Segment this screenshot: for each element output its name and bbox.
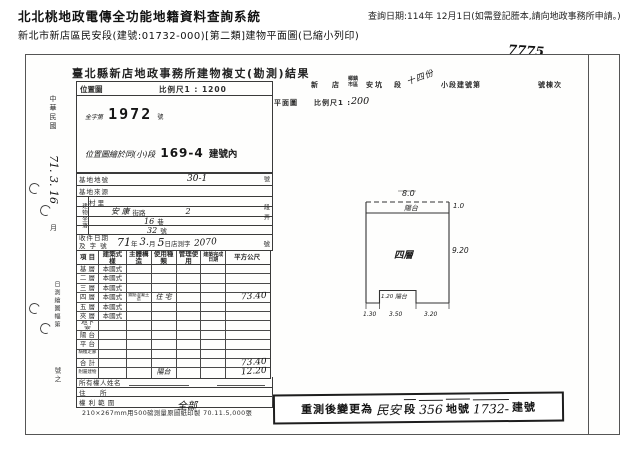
location-note: 位置圖繪於同(小)段 xyxy=(85,150,155,159)
intake-year: 71 xyxy=(117,236,131,249)
row-management xyxy=(177,265,202,273)
query-date: 查詢日期:114年 12月1日(如需登記謄本,請向地政事務所申請。) xyxy=(368,9,621,22)
era-label: 中華民國 xyxy=(48,95,58,131)
row-structure xyxy=(127,274,152,282)
blank-line xyxy=(129,385,189,386)
row-style: 本國式 xyxy=(99,265,127,273)
row-label: 平 台 xyxy=(77,340,99,348)
row-structure xyxy=(127,359,152,367)
row-area xyxy=(226,312,270,320)
row-management xyxy=(177,284,202,292)
row-use xyxy=(152,274,177,282)
stamp-prefix: 重測後變更為 xyxy=(301,400,373,417)
stamp-section-name: 民安 xyxy=(376,399,401,418)
row-area xyxy=(226,321,270,329)
intake-label: 收件日期 及 字 號 xyxy=(77,235,117,249)
header-area: 平方公尺 xyxy=(226,251,270,264)
floor-row-terrace: 平 台 xyxy=(77,340,270,349)
row-style xyxy=(99,350,127,358)
lot-number-row: 基地地號 30-1 號 xyxy=(77,173,272,186)
row-use xyxy=(152,265,177,273)
case-number-prefix: 全字第 xyxy=(85,114,103,121)
punch-mark xyxy=(38,321,52,335)
floor-row-basement: 地下室 xyxy=(77,321,270,330)
floor-area-table: 項 目 建築式樣 主體構造 使用種類 管理使用 建築完成日期 平方公尺 基 層本… xyxy=(76,250,271,379)
survey-sheet-suffix: 號之 xyxy=(52,367,62,384)
row-use xyxy=(152,303,177,311)
intake-day-label: 日店測字 xyxy=(165,238,191,248)
notch-label: 陽台 xyxy=(395,293,408,301)
row-label: 基 層 xyxy=(77,265,99,273)
handwritten-survey-date: 71. 3. 16 xyxy=(47,155,60,204)
location-map-box: 位置圖 比例尺1 : 1200 全字第 1972 號 位置圖繪於同(小)段 16… xyxy=(76,81,273,174)
row-style xyxy=(99,359,127,367)
subsection-label: 小段建號第 xyxy=(441,80,481,90)
header-management: 管理使用 xyxy=(177,251,202,264)
location-note-number: 169-4 xyxy=(160,146,203,160)
row-style xyxy=(99,331,127,339)
street-row: 安 康 街路 2 段 xyxy=(77,207,272,217)
row-management xyxy=(177,293,202,301)
row-structure xyxy=(127,265,152,273)
lane-row: 16 巷 弄 xyxy=(77,217,272,226)
lane-value: 16 xyxy=(144,217,154,226)
owner-name-label: 所有權人姓名 xyxy=(77,377,125,387)
row-management xyxy=(177,340,202,348)
row-area xyxy=(226,340,270,348)
row-style: 本國式 xyxy=(99,274,127,282)
row-label: 地下室 xyxy=(77,321,99,329)
header-item: 項 目 xyxy=(77,251,99,264)
door-value: 32 xyxy=(147,226,157,235)
section-value: 2 xyxy=(186,207,191,216)
stamp-building-number: 1732- xyxy=(473,399,509,416)
case-number-line: 全字第 1972 號 xyxy=(85,104,163,123)
row-style: 本國式 xyxy=(99,312,127,320)
row-structure: 鋼筋混凝土造 xyxy=(127,293,152,301)
stamp-building-label: 建號 xyxy=(512,399,536,415)
row-management xyxy=(177,312,202,320)
lot-number-unit: 號 xyxy=(264,175,270,184)
location-map-label: 位置圖 xyxy=(80,84,103,95)
intake-number-label: 號 xyxy=(264,238,273,248)
system-title: 北北桃地政電傳全功能地籍資料查詢系統 xyxy=(18,6,261,25)
location-note-line: 位置圖繪於同(小)段 169-4 建號內 xyxy=(85,142,237,161)
row-label: 合 計 xyxy=(77,359,99,367)
document-title: 臺北縣新店地政事務所建物複丈(勘測)結果 xyxy=(72,65,310,81)
row-use xyxy=(152,321,177,329)
stamp-lot-number: 356 xyxy=(419,399,443,416)
dim-bottom-mid: 3.50 xyxy=(389,311,403,318)
location-map-scale: 比例尺1 : 1200 xyxy=(159,84,227,95)
dim-balcony-depth: 1.0 xyxy=(453,202,465,210)
floor-row-mezzanine: 夾 層本國式 xyxy=(77,312,270,321)
row-label: 四 層 xyxy=(77,293,99,301)
row-completion xyxy=(201,303,226,311)
survey-sheet-label: 日測繪圖幅第 xyxy=(52,281,61,329)
row-completion xyxy=(201,293,226,301)
rights-row: 權 利 範 圍 全部 xyxy=(77,397,272,407)
township-label: 鄉鎮市區 xyxy=(348,77,361,88)
lot-source-row: 基地來源 xyxy=(77,186,272,197)
row-use xyxy=(152,331,177,339)
row-label: 陽 台 xyxy=(77,331,99,339)
floor-plan-drawing: 8.0 陽台 1.0 9.20 四層 1.20 陽台 1.30 3.50 3.2… xyxy=(358,183,493,328)
row-label: 三 層 xyxy=(77,284,99,292)
row-completion xyxy=(201,284,226,292)
intake-value-cell: 71 年 3. 月 5 日店測字 2070 號 xyxy=(117,235,272,250)
lot-number-value: 30-1 xyxy=(187,174,207,184)
floor-row-3: 三 層本國式 xyxy=(77,284,270,293)
row-style xyxy=(99,321,127,329)
header-style: 建築式樣 xyxy=(99,251,127,264)
case-number-suffix: 號 xyxy=(157,114,163,121)
row-style: 本國式 xyxy=(99,293,127,301)
row-area xyxy=(226,350,270,358)
print-note: 210×267mm用500磅測量原圖紙印製 70.11.5,000張 xyxy=(82,408,252,417)
intake-row: 收件日期 及 字 號 71 年 3. 月 5 日店測字 2070 號 xyxy=(77,235,272,251)
row-completion xyxy=(201,312,226,320)
floor-row-5: 五 層本國式 xyxy=(77,303,270,312)
case-number: 1972 xyxy=(108,105,152,123)
row-structure xyxy=(127,321,152,329)
township-name: 店 xyxy=(332,80,339,90)
row-structure xyxy=(127,284,152,292)
row-structure xyxy=(127,350,152,358)
row-use: 住 宅 xyxy=(152,293,177,301)
subsection-handwritten: 十四份 xyxy=(405,66,436,87)
row-management xyxy=(177,350,202,358)
row-completion xyxy=(201,274,226,282)
row-label: 五 層 xyxy=(77,303,99,311)
row-structure xyxy=(127,312,152,320)
row-management xyxy=(177,303,202,311)
lot-number-label: 基地地號 xyxy=(77,174,117,184)
page: 北北桃地政電傳全功能地籍資料查詢系統 查詢日期:114年 12月1日(如需登記謄… xyxy=(0,0,640,451)
floor-row-4: 四 層本國式鋼筋混凝土造住 宅73.40 xyxy=(77,293,270,302)
wall-bottom-with-notch xyxy=(366,291,449,304)
row-structure xyxy=(127,340,152,348)
row-completion xyxy=(201,321,226,329)
row-completion xyxy=(201,350,226,358)
intake-label-bottom: 及 字 號 xyxy=(79,242,108,250)
row-use xyxy=(152,359,177,367)
row-label: 騎樓走廊 xyxy=(77,350,99,358)
street-label: 街路 xyxy=(133,207,146,217)
owner-table: 所有權人姓名 住 所 權 利 範 圍 全部 xyxy=(76,377,273,408)
floor-row-total: 合 計73.40 xyxy=(77,359,270,368)
location-box-header: 位置圖 比例尺1 : 1200 xyxy=(77,82,272,96)
row-management xyxy=(177,331,202,339)
intake-month: 3. xyxy=(140,237,150,248)
punch-mark xyxy=(27,301,41,315)
village-row: 村 里 xyxy=(77,197,272,207)
row-management xyxy=(177,359,202,367)
balcony-label: 陽台 xyxy=(404,205,419,213)
row-completion xyxy=(201,359,226,367)
row-style: 本國式 xyxy=(99,284,127,292)
row-area: 73.40 xyxy=(226,292,270,303)
row-area xyxy=(226,274,270,282)
notch-depth: 1.20 xyxy=(381,294,394,300)
document-description: 新北市新店區民安段(建號:01732-000)[第二類]建物平面圖(已縮小列印) xyxy=(18,27,359,42)
lot-source-value-cell xyxy=(117,186,272,196)
alley-label: 弄 xyxy=(264,212,272,221)
right-margin-divider xyxy=(588,55,589,434)
floor-row-balcony: 陽 台 xyxy=(77,331,270,340)
floor-row-arcade: 騎樓走廊 xyxy=(77,350,270,359)
floor-row-2: 二 層本國式 xyxy=(77,274,270,283)
row-area xyxy=(226,303,270,311)
intake-month-label: 月 xyxy=(149,238,156,248)
blank-line xyxy=(217,385,265,386)
row-use xyxy=(152,284,177,292)
row-completion xyxy=(201,331,226,339)
rights-label: 權 利 範 圍 xyxy=(77,397,125,407)
plan-scale-value: 200 xyxy=(351,96,369,107)
dimension-ticks xyxy=(366,303,449,309)
section-suffix: 段 xyxy=(394,80,401,90)
building-unit-label: 號棟次 xyxy=(538,80,562,90)
row-area xyxy=(226,265,270,273)
row-use xyxy=(152,350,177,358)
header-completion: 建築完成日期 xyxy=(201,251,226,264)
header-structure: 主體構造 xyxy=(127,251,152,264)
row-area xyxy=(226,331,270,339)
row-management xyxy=(177,321,202,329)
intake-day: 5 xyxy=(158,236,165,249)
row-management xyxy=(177,274,202,282)
dim-bottom-left: 1.30 xyxy=(363,311,377,318)
row-completion xyxy=(201,265,226,273)
punch-mark xyxy=(38,203,52,217)
month-label: 月 xyxy=(50,223,57,233)
row-structure xyxy=(127,331,152,339)
row-label: 夾 層 xyxy=(77,312,99,320)
door-label: 號 xyxy=(160,225,167,235)
scanned-document: 臺北縣新店地政事務所建物複丈(勘測)結果 中華民國 71. 3. 16 月 日測… xyxy=(25,54,620,435)
section-label: 段 xyxy=(264,203,272,212)
lot-source-label: 基地來源 xyxy=(77,186,117,196)
lot-number-value-cell: 30-1 號 xyxy=(117,173,272,185)
township-prefix: 新 xyxy=(311,80,318,90)
owner-address-row: 住 所 xyxy=(77,388,272,397)
dim-right: 9.20 xyxy=(452,246,469,255)
intake-year-label: 年 xyxy=(131,238,138,248)
stamp-section-label: 段 xyxy=(404,399,416,417)
intake-number: 2070 xyxy=(193,237,217,249)
row-style xyxy=(99,340,127,348)
floor-table-header: 項 目 建築式樣 主體構造 使用種類 管理使用 建築完成日期 平方公尺 xyxy=(77,251,270,265)
row-use xyxy=(152,312,177,320)
row-structure xyxy=(127,303,152,311)
punch-mark xyxy=(27,181,41,195)
resurvey-stamp: 重測後變更為 民安 段 356 地號 1732- 建號 xyxy=(273,391,564,424)
dim-top: 8.0 xyxy=(402,189,415,198)
row-completion xyxy=(201,340,226,348)
plan-label: 平面圖 xyxy=(274,98,298,108)
row-use xyxy=(152,340,177,348)
village-label: 村 里 xyxy=(89,197,119,207)
site-info-table: 基地地號 30-1 號 基地來源 建物坐落 村 里 安 康 街路 2 xyxy=(76,172,273,251)
owner-address-label: 住 所 xyxy=(77,387,125,397)
plan-scale-label: 比例尺1 : xyxy=(314,98,351,108)
stamp-lot-label: 地號 xyxy=(446,398,470,416)
floor-row-1: 基 層本國式 xyxy=(77,265,270,274)
row-style: 本國式 xyxy=(99,303,127,311)
street-value: 安 康 xyxy=(111,206,130,217)
floor-label: 四層 xyxy=(394,250,415,261)
dim-bottom-right: 3.20 xyxy=(424,311,438,318)
header-use: 使用種類 xyxy=(152,251,177,264)
situs-group: 建物坐落 村 里 安 康 街路 2 段 16 巷 弄 32 號 xyxy=(77,197,272,235)
row-label: 二 層 xyxy=(77,274,99,282)
section-name: 安坑 xyxy=(366,80,384,90)
location-note-suffix: 建號內 xyxy=(209,149,238,160)
